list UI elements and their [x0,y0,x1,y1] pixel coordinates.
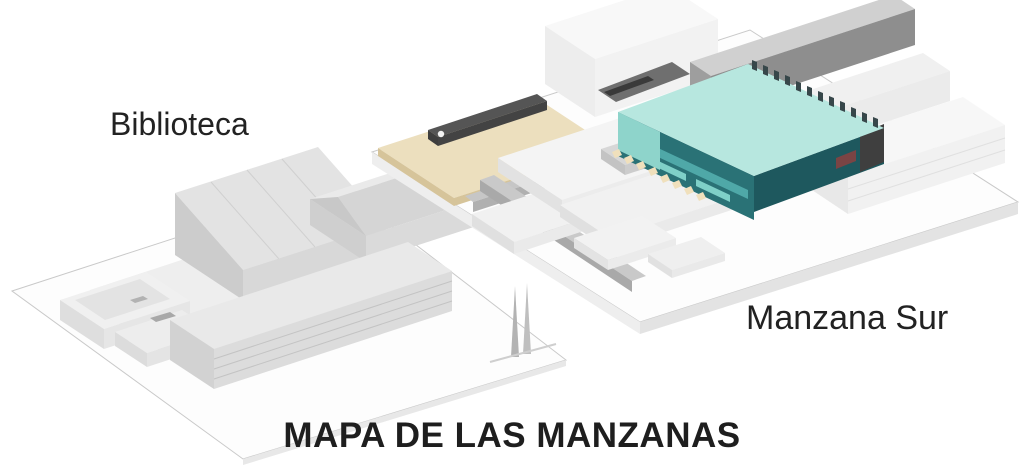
site-map-image: Biblioteca Manzana Sur MAPA DE LAS MANZA… [0,0,1024,465]
axonometric-scene [0,0,1024,465]
map-title: MAPA DE LAS MANZANAS [283,416,740,456]
block-manzana-sur[interactable] [372,0,1018,334]
label-manzana-sur: Manzana Sur [746,299,948,338]
bar-skylight-dot [438,131,444,137]
obelisk [523,283,531,354]
label-biblioteca: Biblioteca [110,106,249,143]
